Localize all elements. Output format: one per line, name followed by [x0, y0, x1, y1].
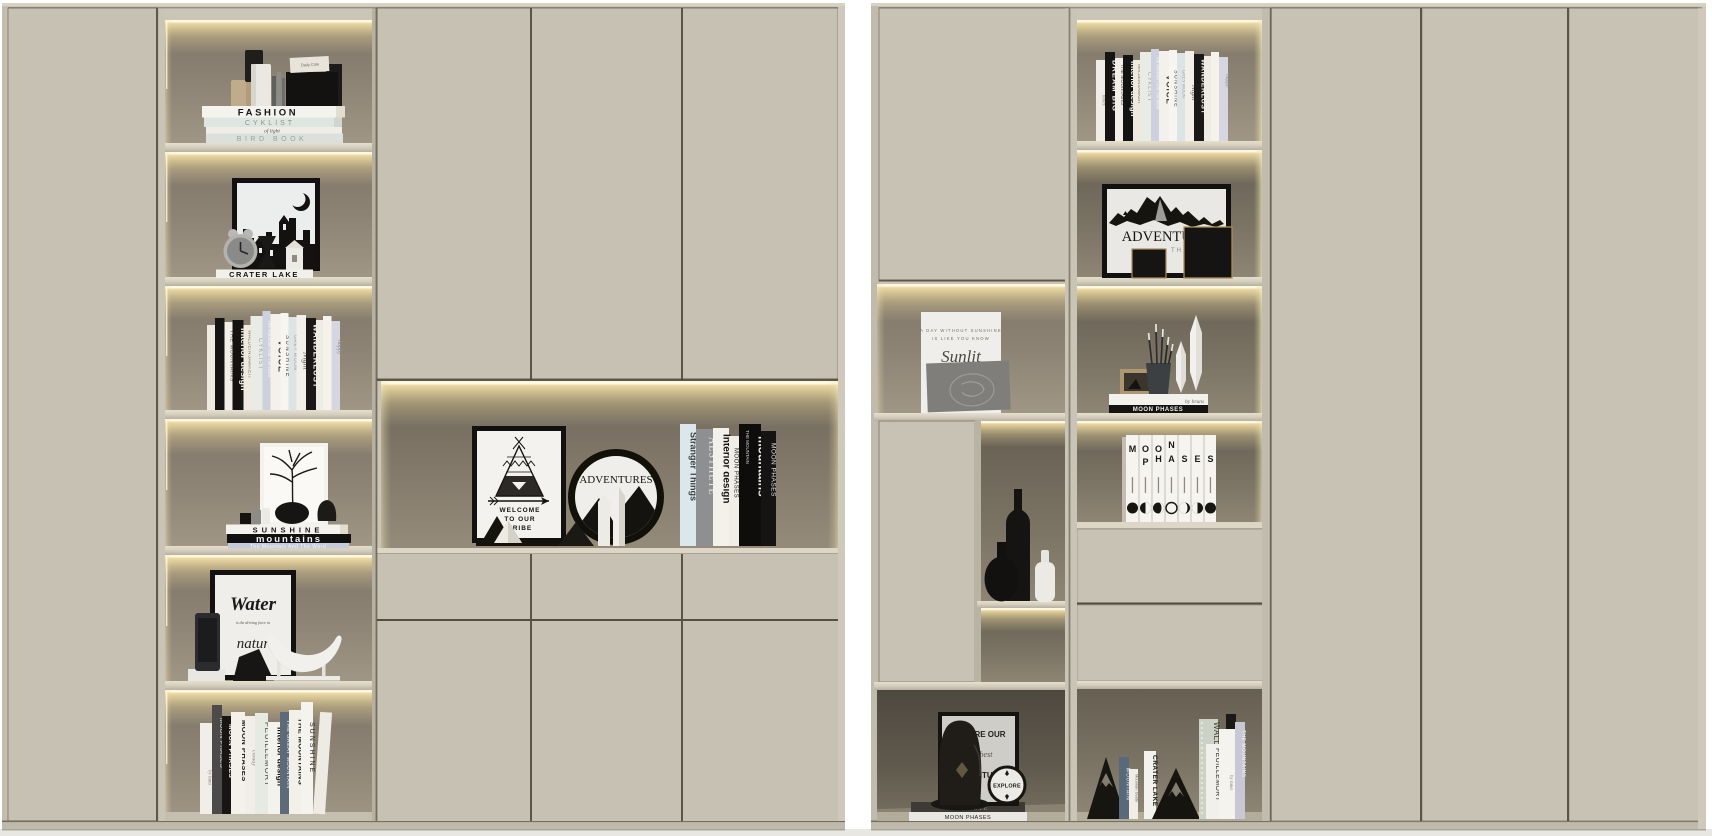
- svg-text:is the driving force in: is the driving force in: [236, 620, 270, 625]
- svg-text:E: E: [1194, 454, 1200, 464]
- svg-text:H: H: [1155, 454, 1162, 464]
- svg-text:O: O: [1155, 444, 1162, 454]
- svg-text:FASHION: FASHION: [238, 108, 298, 119]
- svg-text:by luna: by luna: [1228, 775, 1233, 790]
- svg-text:natur: natur: [237, 636, 270, 652]
- svg-text:happy: happy: [1224, 74, 1230, 88]
- svg-text:S: S: [1207, 454, 1213, 464]
- svg-text:O: O: [1142, 444, 1149, 454]
- svg-text:by bruns: by bruns: [1185, 399, 1204, 405]
- svg-text:CYKLIST: CYKLIST: [257, 338, 263, 370]
- svg-text:MOON PHASES: MOON PHASES: [1133, 407, 1184, 413]
- svg-text:SUNSHINE: SUNSHINE: [308, 722, 315, 774]
- svg-text:MOON PHASES: MOON PHASES: [770, 443, 777, 497]
- svg-text:best: best: [980, 750, 994, 759]
- svg-text:happy: happy: [336, 340, 342, 355]
- svg-text:IS LIKE YOU KNOW: IS LIKE YOU KNOW: [932, 336, 990, 341]
- svg-text:N: N: [1168, 440, 1175, 450]
- svg-text:P: P: [1142, 457, 1148, 467]
- svg-text:CRATER LAKE: CRATER LAKE: [1151, 755, 1158, 807]
- svg-text:THE MOUNTAIN: THE MOUNTAIN: [745, 430, 750, 464]
- svg-text:Mountain Guide: Mountain Guide: [1135, 774, 1140, 803]
- svg-text:RE OUR: RE OUR: [974, 730, 1005, 739]
- svg-text:of light: of light: [264, 128, 280, 135]
- svg-text:The Mountain And The Word: The Mountain And The Word: [250, 544, 326, 550]
- svg-text:WELCOME: WELCOME: [500, 507, 541, 514]
- svg-text:MOON PHASES: MOON PHASES: [733, 448, 739, 498]
- svg-text:TH: TH: [1171, 248, 1183, 254]
- svg-text:S: S: [1181, 454, 1187, 464]
- svg-text:by luna: by luna: [207, 770, 212, 785]
- svg-text:Daily Cole: Daily Cole: [301, 61, 320, 67]
- svg-text:MOON PHASES: MOON PHASES: [945, 815, 991, 821]
- svg-text:A: A: [1168, 454, 1175, 464]
- svg-text:A DAY WITHOUT SUNSHINE: A DAY WITHOUT SUNSHINE: [920, 328, 1002, 333]
- svg-text:M: M: [1129, 444, 1137, 454]
- svg-text:Water: Water: [230, 594, 277, 615]
- svg-text:CYKLIST: CYKLIST: [245, 120, 295, 127]
- svg-text:notes: notes: [1101, 95, 1106, 106]
- svg-text:ADVENTURES: ADVENTURES: [579, 474, 652, 486]
- svg-text:CRATER LAKE: CRATER LAKE: [229, 270, 299, 279]
- svg-text:BIRD BOOK: BIRD BOOK: [237, 136, 307, 143]
- svg-text:EXPLORE: EXPLORE: [993, 784, 1021, 790]
- svg-text:THE MOUNTAINS: THE MOUNTAINS: [1240, 730, 1246, 778]
